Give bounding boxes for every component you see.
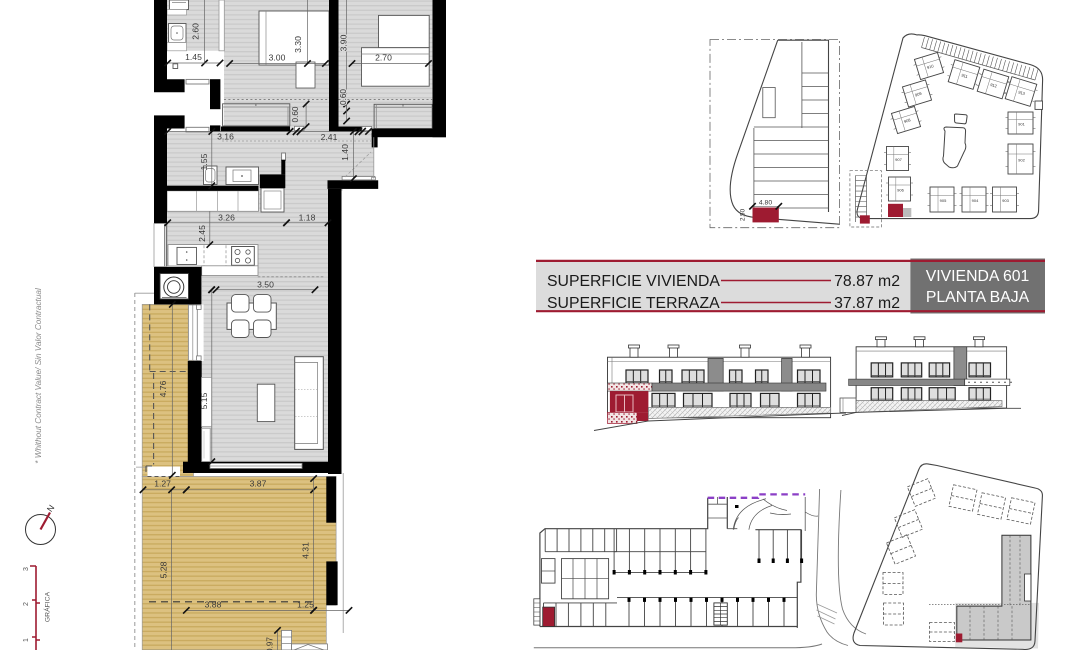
svg-text:GRÁFICA: GRÁFICA: [43, 591, 52, 622]
svg-text:1.40: 1.40: [340, 144, 350, 161]
svg-text:2: 2: [23, 602, 30, 606]
svg-text:SUPERFICIE TERRAZA: SUPERFICIE TERRAZA: [547, 295, 720, 312]
svg-text:3: 3: [23, 567, 30, 571]
svg-text:4.76: 4.76: [158, 380, 168, 397]
svg-text:3.16: 3.16: [217, 132, 234, 142]
svg-text:2.45: 2.45: [197, 225, 207, 242]
svg-text:VIVIENDA 601: VIVIENDA 601: [926, 268, 1030, 285]
svg-text:1.45: 1.45: [185, 52, 202, 62]
svg-text:902: 902: [1018, 158, 1025, 163]
svg-text:3.87: 3.87: [250, 479, 267, 489]
svg-text:4.80: 4.80: [759, 200, 772, 207]
svg-text:0.60: 0.60: [339, 89, 348, 105]
svg-text:907: 907: [895, 157, 902, 162]
svg-text:905: 905: [940, 198, 947, 203]
svg-text:901: 901: [1018, 122, 1025, 127]
svg-text:5.28: 5.28: [159, 561, 169, 578]
svg-text:2.50: 2.50: [740, 208, 747, 221]
svg-text:1.55: 1.55: [199, 153, 209, 170]
svg-text:1: 1: [23, 638, 30, 642]
svg-text:PLANTA BAJA: PLANTA BAJA: [926, 289, 1030, 306]
svg-text:78.87 m2: 78.87 m2: [834, 273, 900, 290]
svg-text:1.27: 1.27: [154, 479, 171, 489]
svg-text:SUPERFICIE VIVIENDA: SUPERFICIE VIVIENDA: [547, 273, 720, 290]
svg-text:3.26: 3.26: [218, 213, 235, 223]
svg-text:5.15: 5.15: [199, 392, 209, 409]
svg-text:3.30: 3.30: [293, 36, 303, 53]
svg-text:0.97: 0.97: [266, 637, 275, 650]
svg-text:2.41: 2.41: [321, 132, 338, 142]
svg-text:* Whithout Contract Value/ Sin: * Whithout Contract Value/ Sin Valor Con…: [34, 288, 43, 464]
svg-text:1.18: 1.18: [299, 213, 316, 223]
svg-text:1.25: 1.25: [297, 600, 314, 610]
svg-text:3.00: 3.00: [269, 53, 286, 63]
svg-text:906: 906: [897, 188, 904, 193]
svg-text:3.50: 3.50: [257, 279, 274, 289]
svg-text:904: 904: [972, 198, 979, 203]
svg-text:2.70: 2.70: [375, 53, 392, 63]
svg-text:4.31: 4.31: [301, 542, 311, 559]
svg-text:37.87 m2: 37.87 m2: [834, 295, 900, 312]
svg-text:3.88: 3.88: [205, 600, 222, 610]
svg-text:2.60: 2.60: [191, 23, 201, 40]
svg-text:0.60: 0.60: [291, 106, 300, 122]
svg-text:3.90: 3.90: [338, 34, 348, 51]
svg-text:903: 903: [1002, 198, 1009, 203]
